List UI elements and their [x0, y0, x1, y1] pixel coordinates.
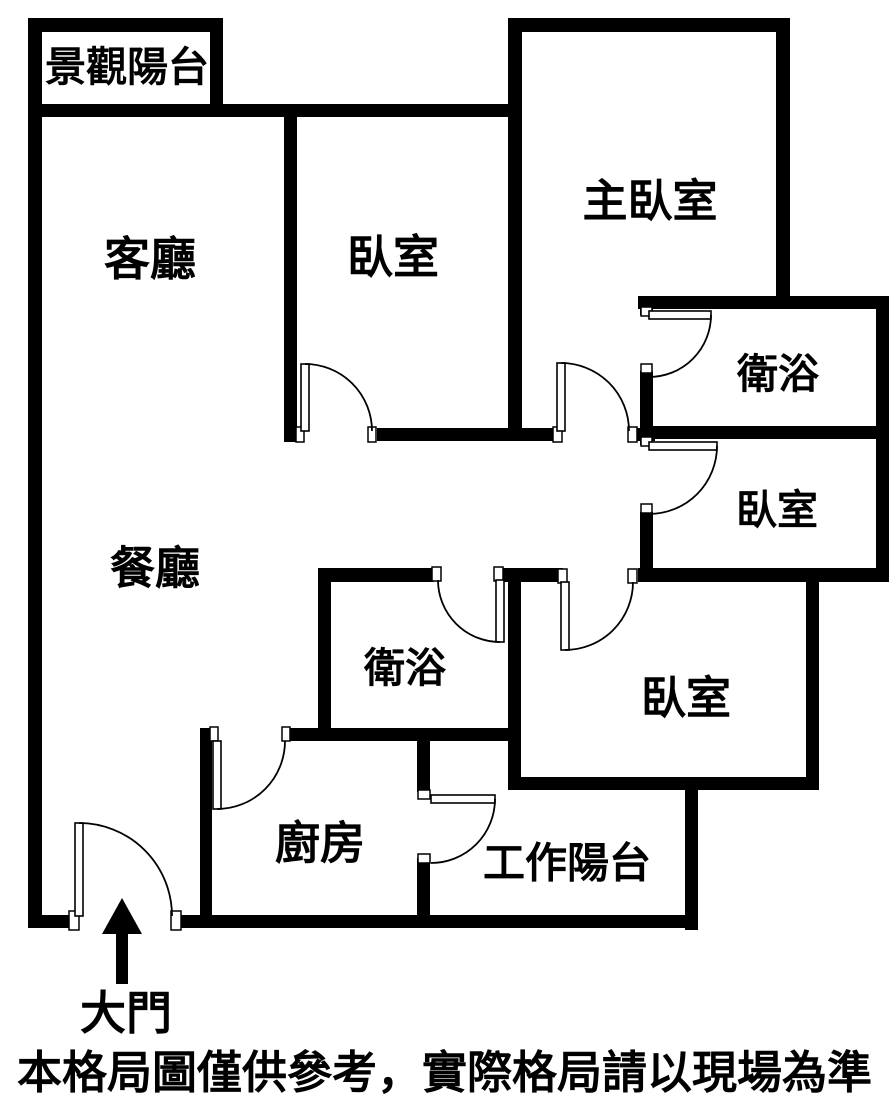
room-label-kitchen: 廚房 [275, 817, 365, 870]
kitchen-door [213, 741, 285, 809]
room-label-bedroom-bottom: 臥室 [641, 672, 731, 725]
wall [640, 512, 653, 570]
wall [179, 915, 698, 928]
wall [685, 783, 698, 930]
wall [508, 568, 521, 790]
floorplan-canvas: 景觀陽台客廳臥室主臥室衛浴臥室餐廳衛浴臥室廚房工作陽台大門 本格局圖僅供參考，實… [0, 0, 889, 1109]
bathroom-middle-door-leaf [496, 580, 504, 642]
entrance-arrow-layer [102, 898, 142, 984]
room-label-bathroom-right: 衛浴 [736, 350, 820, 398]
bedroom-top-door [301, 364, 372, 431]
entrance-arrow-icon [102, 898, 142, 934]
wall [806, 568, 819, 790]
wall [638, 296, 889, 309]
walls-layer [28, 18, 889, 930]
door-post [641, 364, 652, 373]
room-label-scenic-balcony: 景觀陽台 [45, 43, 209, 91]
kitchen-door-swing-arc [217, 741, 285, 809]
wall [28, 18, 223, 32]
doors-layer [75, 311, 717, 916]
door-post [494, 567, 503, 581]
door-post [432, 567, 441, 581]
door-post [210, 727, 218, 741]
wall [284, 104, 297, 442]
room-label-dining-room: 餐廳 [110, 542, 200, 595]
entrance-arrow-shaft [116, 928, 128, 984]
wall [210, 18, 223, 117]
bedroom-bottom-door [561, 582, 633, 650]
wall [200, 728, 212, 916]
bathroom-right-door [649, 311, 711, 377]
door-post [641, 504, 652, 513]
disclaimer-text: 本格局圖僅供參考，實際格局請以現場為準 [0, 1046, 889, 1100]
kitchen-door-leaf [213, 741, 221, 809]
door-post [282, 727, 290, 741]
wall [417, 728, 430, 792]
wall [28, 915, 72, 928]
wall [318, 568, 434, 582]
wall [776, 18, 790, 309]
wall [508, 18, 790, 32]
floor-plan-svg: 景觀陽台客廳臥室主臥室衛浴臥室餐廳衛浴臥室廚房工作陽台大門 [0, 0, 889, 1109]
bedroom-bottom-door-swing-arc [565, 582, 633, 650]
master-bedroom-door [557, 363, 629, 431]
main-entrance-door-swing-arc [79, 823, 172, 916]
bathroom-middle-door [438, 580, 504, 642]
room-labels-layer: 景觀陽台客廳臥室主臥室衛浴臥室餐廳衛浴臥室廚房工作陽台大門 [45, 43, 820, 1040]
room-label-work-balcony: 工作陽台 [483, 839, 651, 888]
door-post [418, 790, 430, 799]
master-bedroom-door-leaf [557, 363, 565, 431]
wall [508, 18, 522, 430]
room-label-living-room: 客廳 [104, 232, 196, 286]
wall [28, 18, 42, 928]
bedroom-right-door-leaf [649, 442, 717, 450]
door-post [558, 569, 567, 583]
bathroom-right-door-swing-arc [649, 315, 711, 377]
door-post [418, 854, 430, 863]
door-post [628, 569, 637, 583]
room-label-bedroom-right: 臥室 [736, 486, 818, 534]
room-label-bedroom-top: 臥室 [347, 230, 439, 284]
bathroom-middle-door-swing-arc [438, 580, 500, 642]
wall [638, 568, 889, 582]
bedroom-bottom-door-leaf [561, 582, 569, 650]
bedroom-top-door-leaf [301, 364, 309, 431]
wall [377, 428, 555, 441]
wall [417, 858, 430, 916]
wall [318, 568, 331, 740]
work-balcony-door-leaf [431, 795, 495, 803]
bedroom-right-door [649, 442, 717, 514]
entrance-label: 大門 [80, 986, 172, 1040]
wall [508, 777, 819, 790]
room-label-bathroom-middle: 衛浴 [363, 644, 447, 692]
bathroom-right-door-leaf [649, 311, 711, 319]
room-label-master-bedroom: 主臥室 [582, 175, 717, 228]
bedroom-right-door-swing-arc [649, 446, 717, 514]
wall [28, 104, 522, 117]
master-bedroom-door-swing-arc [561, 363, 629, 431]
wall [640, 426, 889, 439]
bedroom-top-door-swing-arc [305, 364, 372, 431]
wall [287, 728, 521, 741]
main-entrance-door-leaf [75, 823, 83, 916]
